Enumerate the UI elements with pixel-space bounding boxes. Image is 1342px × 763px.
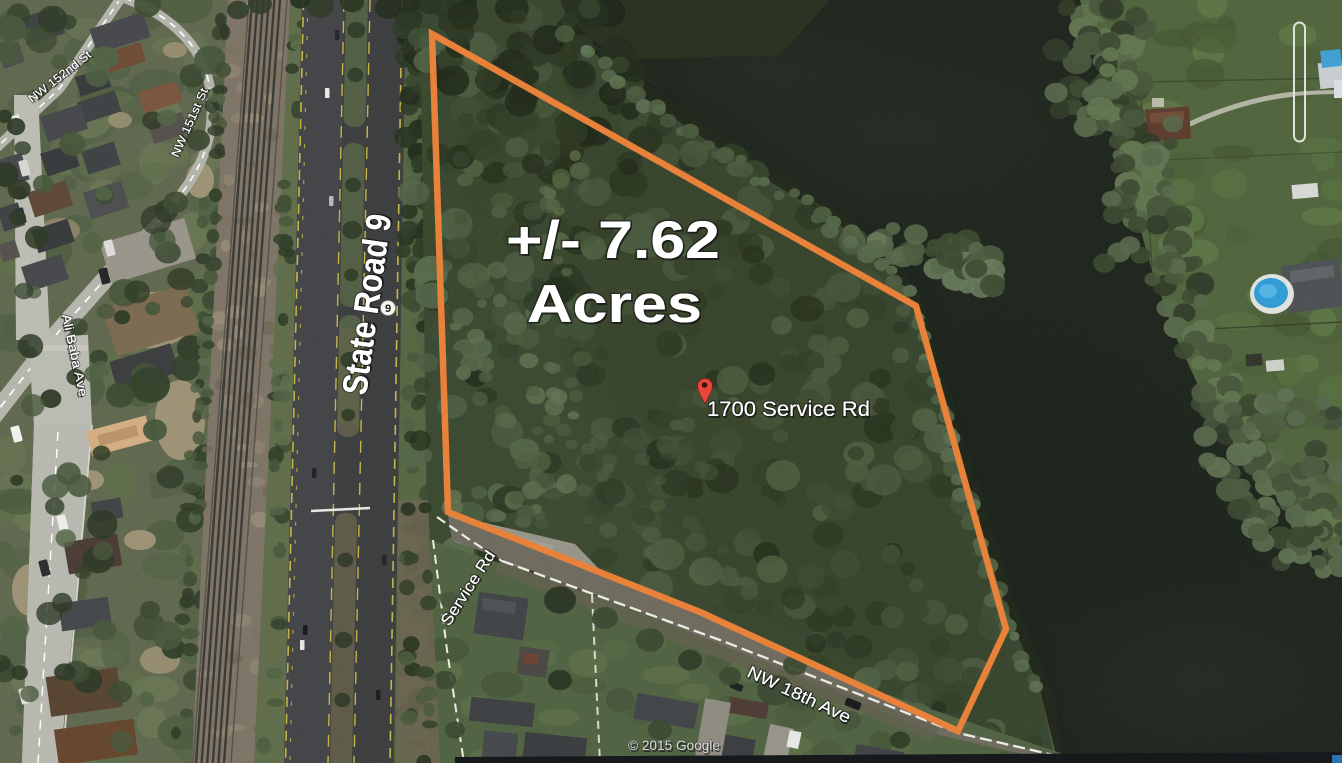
svg-text:9: 9 bbox=[385, 303, 391, 315]
svg-text:1700 Service Rd: 1700 Service Rd bbox=[707, 398, 870, 421]
svg-text:Acres: Acres bbox=[527, 275, 702, 334]
svg-text:+/- 7.62: +/- 7.62 bbox=[506, 211, 720, 270]
svg-text:© 2015 Google: © 2015 Google bbox=[628, 738, 720, 753]
